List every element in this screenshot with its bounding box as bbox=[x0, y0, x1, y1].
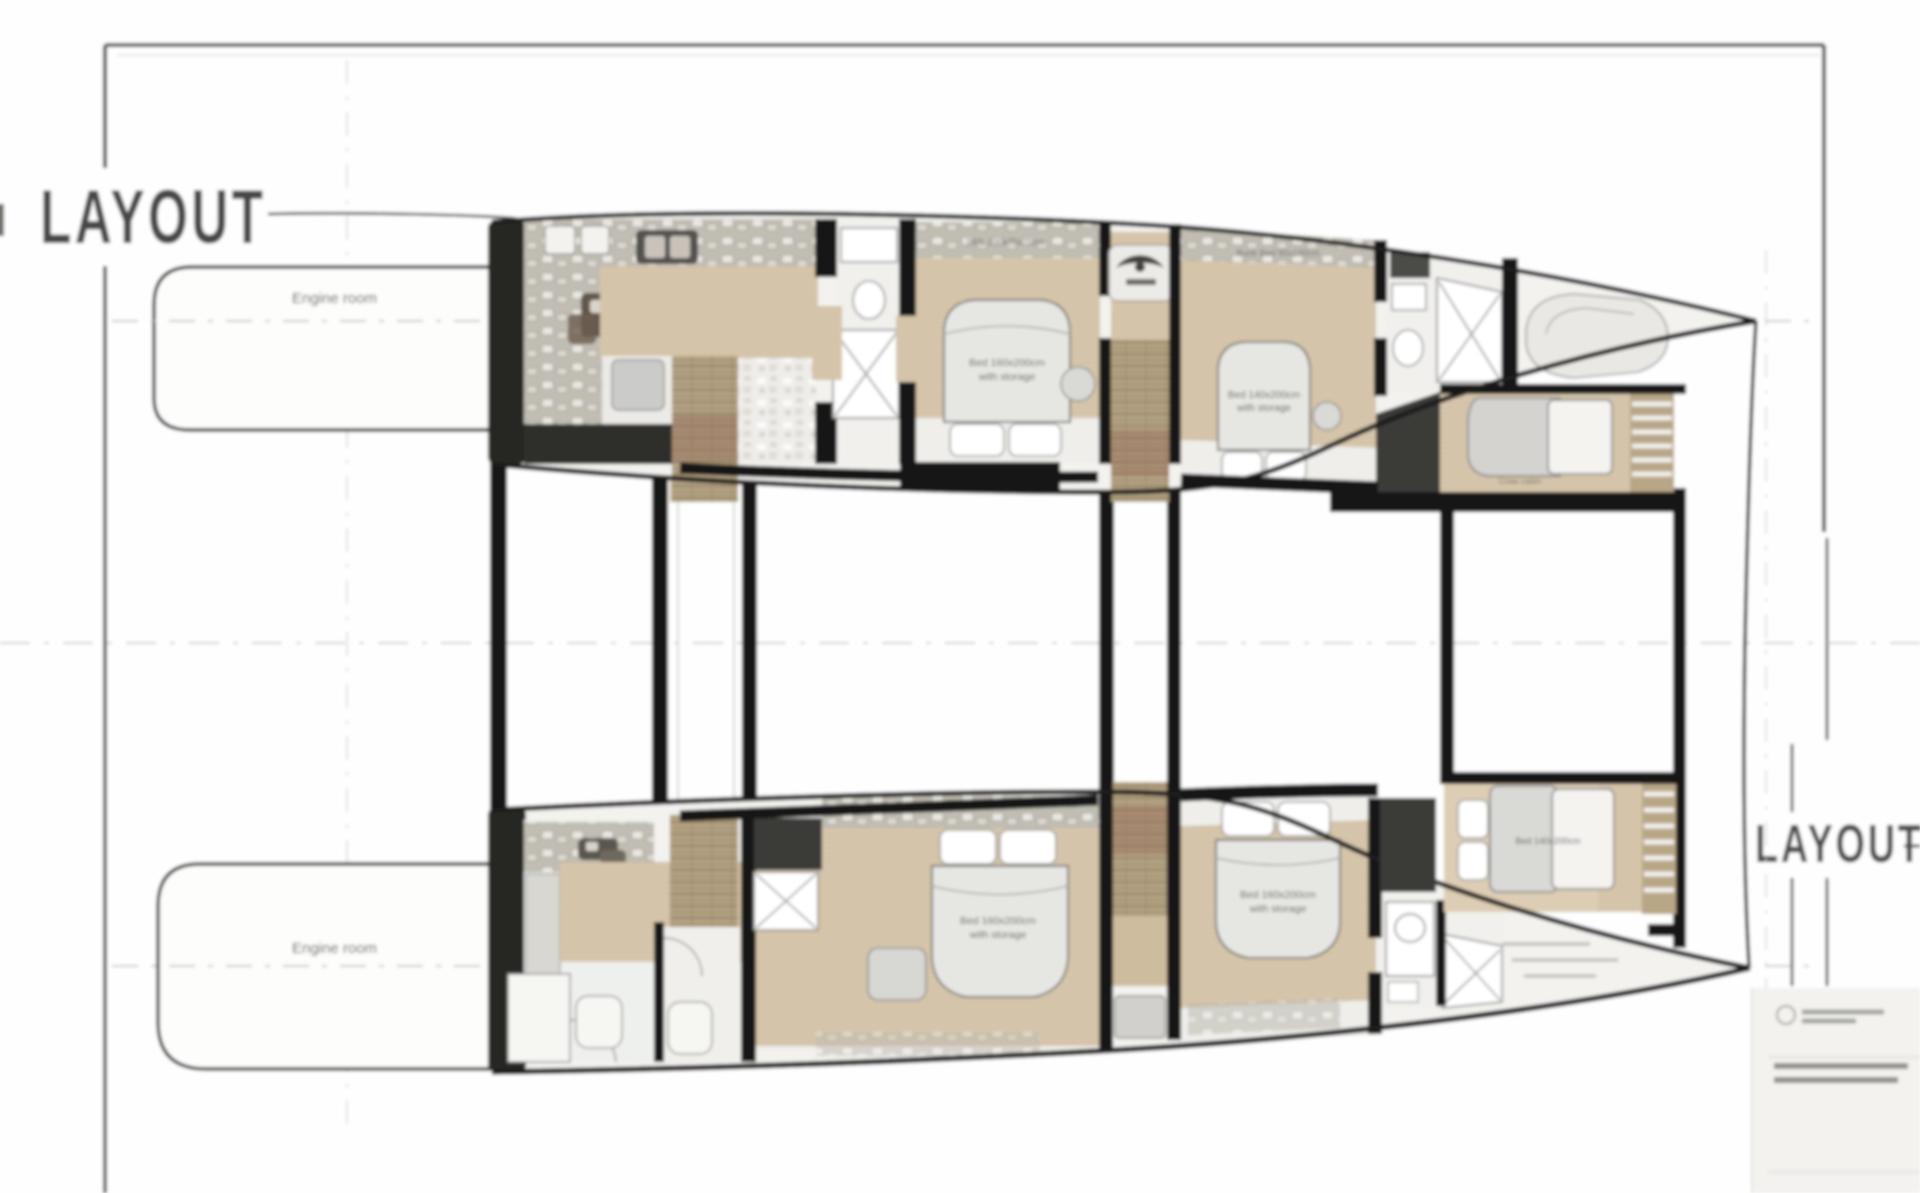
svg-text:Engine room: Engine room bbox=[292, 290, 377, 307]
svg-text:Engine room: Engine room bbox=[292, 940, 377, 957]
svg-text:with storage: with storage bbox=[969, 929, 1027, 941]
svg-text:Bunk Bed 90x190cm: Bunk Bed 90x190cm bbox=[1236, 248, 1319, 258]
svg-text:Bed 140x200cm: Bed 140x200cm bbox=[1228, 390, 1300, 401]
svg-text:with storage: with storage bbox=[1236, 403, 1291, 414]
svg-text:LAYOUT: LAYOUT bbox=[1755, 813, 1920, 873]
svg-text:with storage: with storage bbox=[1249, 903, 1307, 915]
svg-text:Bed 160x200cm: Bed 160x200cm bbox=[1240, 889, 1316, 901]
svg-text:Bed 160x200cm: Bed 160x200cm bbox=[960, 915, 1036, 927]
svg-text:LAYOUT: LAYOUT bbox=[40, 174, 266, 260]
svg-text:Crew cabin: Crew cabin bbox=[1499, 476, 1542, 486]
svg-text:Bed 140x200cm: Bed 140x200cm bbox=[1515, 836, 1580, 846]
svg-text:360L 230x75x75cm: 360L 230x75x75cm bbox=[966, 237, 1044, 247]
svg-text:Bed 160x200cm: Bed 160x200cm bbox=[969, 357, 1045, 369]
svg-text:with storage: with storage bbox=[978, 371, 1036, 383]
